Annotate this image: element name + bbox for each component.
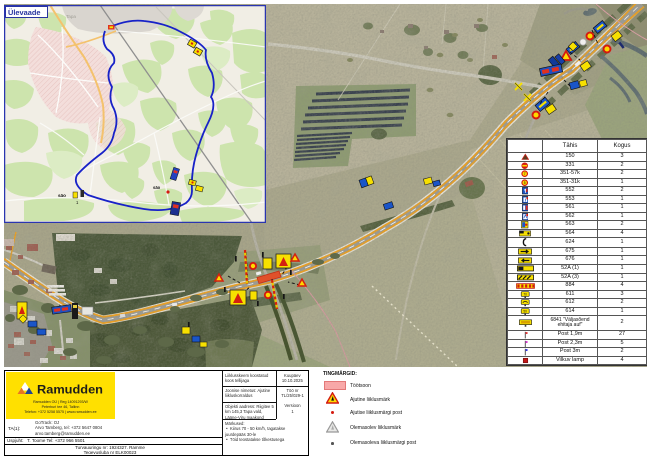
svg-text:Ülevaade: Ülevaade <box>8 8 40 17</box>
svg-text:Tapa: Tapa <box>66 14 76 19</box>
svg-text:säo: säo <box>153 185 161 190</box>
svg-text:5: 5 <box>524 181 526 185</box>
svg-text:50: 50 <box>523 309 527 313</box>
svg-text:7: 7 <box>524 172 526 176</box>
svg-text:70: 70 <box>523 292 527 296</box>
svg-text:säo: säo <box>58 193 66 198</box>
svg-text:Ramudden: Ramudden <box>37 382 103 396</box>
